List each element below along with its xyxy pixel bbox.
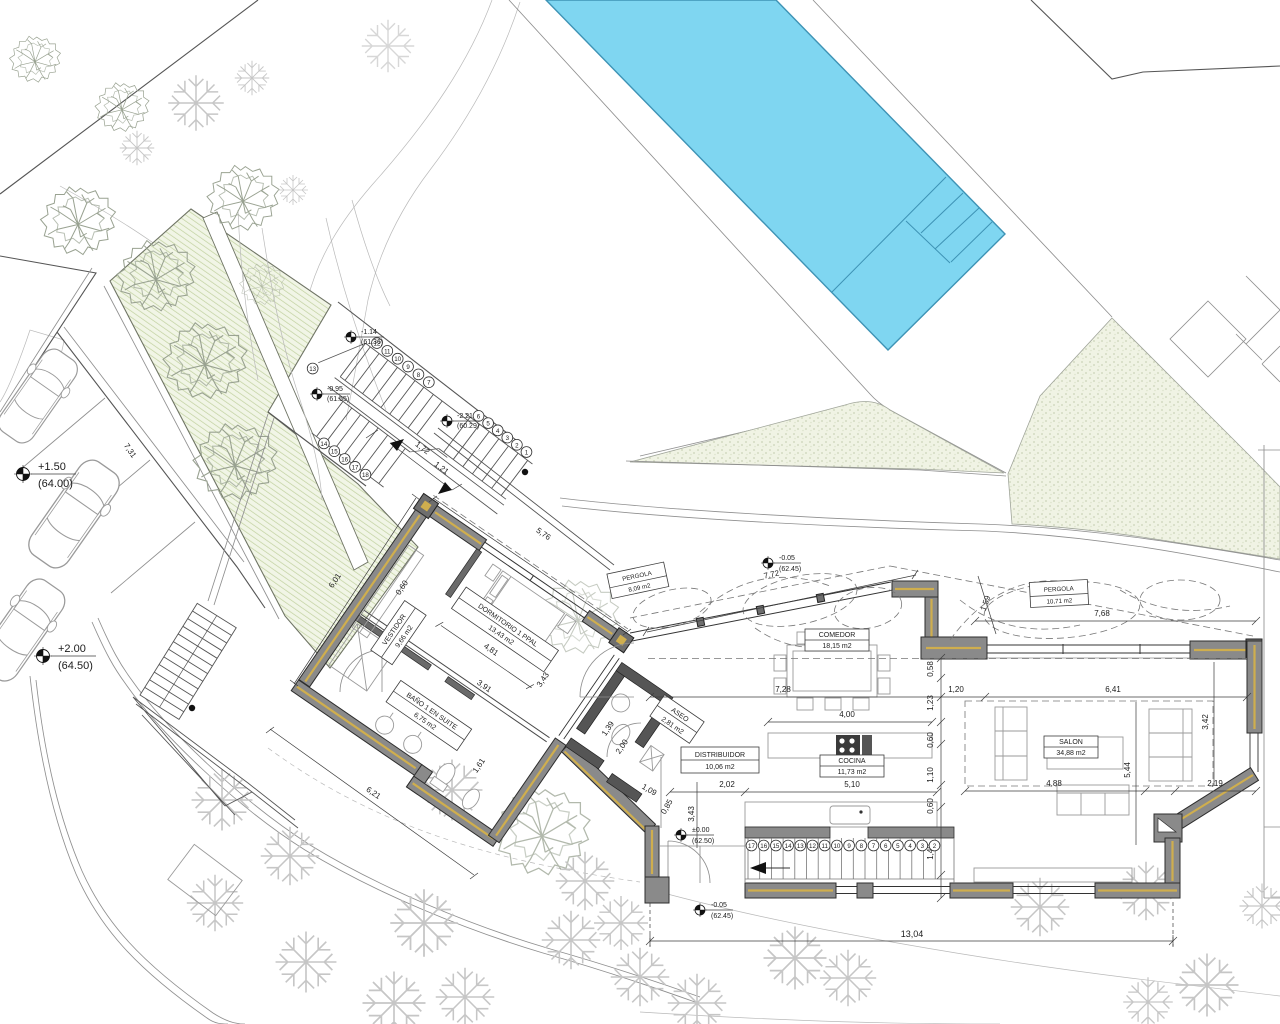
svg-text:0,60: 0,60 xyxy=(926,798,935,814)
svg-text:0,58: 0,58 xyxy=(926,661,935,677)
svg-text:5: 5 xyxy=(486,421,490,428)
svg-text:15: 15 xyxy=(331,449,338,456)
svg-text:(64.50): (64.50) xyxy=(58,660,93,672)
svg-text:0,60: 0,60 xyxy=(926,732,935,748)
svg-text:7: 7 xyxy=(427,380,431,387)
svg-text:6,41: 6,41 xyxy=(1105,685,1121,694)
svg-text:-2.21: -2.21 xyxy=(457,413,473,420)
svg-text:1,20: 1,20 xyxy=(948,685,964,694)
svg-text:16: 16 xyxy=(341,457,348,464)
svg-text:2: 2 xyxy=(933,843,937,850)
svg-text:13,04: 13,04 xyxy=(901,929,924,939)
svg-text:4,00: 4,00 xyxy=(839,710,855,719)
svg-text:11: 11 xyxy=(384,348,391,355)
svg-text:10: 10 xyxy=(833,843,840,850)
svg-text:-0.05: -0.05 xyxy=(779,555,795,562)
svg-text:2,02: 2,02 xyxy=(719,780,735,789)
svg-text:1,10: 1,10 xyxy=(926,767,935,783)
svg-text:3: 3 xyxy=(506,435,510,442)
svg-text:COCINA: COCINA xyxy=(838,758,866,765)
svg-text:12: 12 xyxy=(809,843,816,850)
svg-text:16: 16 xyxy=(760,843,767,850)
svg-text:11,73 m2: 11,73 m2 xyxy=(838,769,867,776)
svg-text:7,28: 7,28 xyxy=(775,685,791,694)
svg-text:14: 14 xyxy=(320,441,327,448)
svg-text:4,88: 4,88 xyxy=(1046,779,1062,788)
svg-text:(62.50): (62.50) xyxy=(692,838,714,845)
svg-text:5,10: 5,10 xyxy=(844,780,860,789)
svg-text:8: 8 xyxy=(860,843,864,850)
svg-text:+1.50: +1.50 xyxy=(38,461,66,473)
svg-text:10: 10 xyxy=(394,356,401,363)
svg-text:10,06 m2: 10,06 m2 xyxy=(705,764,734,771)
svg-text:(61.55): (61.55) xyxy=(327,396,349,403)
svg-text:7: 7 xyxy=(872,843,876,850)
svg-text:4: 4 xyxy=(496,428,500,435)
svg-text:5,44: 5,44 xyxy=(1123,762,1132,778)
svg-text:COMEDOR: COMEDOR xyxy=(819,632,856,639)
svg-text:-0.95: -0.95 xyxy=(327,386,343,393)
svg-text:(61.36): (61.36) xyxy=(361,339,383,346)
svg-text:2,19: 2,19 xyxy=(1207,779,1223,788)
svg-text:3,42: 3,42 xyxy=(1201,714,1210,730)
svg-text:(62.45): (62.45) xyxy=(779,566,801,573)
svg-text:13: 13 xyxy=(309,366,316,373)
svg-text:17: 17 xyxy=(748,843,755,850)
svg-text:13: 13 xyxy=(797,843,804,850)
svg-text:3: 3 xyxy=(921,843,925,850)
svg-text:11: 11 xyxy=(821,843,828,850)
svg-text:7,68: 7,68 xyxy=(1094,609,1110,618)
svg-text:(60.29): (60.29) xyxy=(457,423,479,430)
svg-text:10,71 m2: 10,71 m2 xyxy=(1046,597,1073,605)
svg-text:1: 1 xyxy=(525,450,529,457)
svg-text:4: 4 xyxy=(908,843,912,850)
svg-text:17: 17 xyxy=(352,464,359,471)
svg-text:9: 9 xyxy=(847,843,851,850)
svg-text:18,15 m2: 18,15 m2 xyxy=(822,643,851,650)
svg-text:-1.14: -1.14 xyxy=(361,329,377,336)
svg-text:6: 6 xyxy=(477,413,481,420)
svg-text:6: 6 xyxy=(884,843,888,850)
svg-text:14: 14 xyxy=(785,843,792,850)
svg-text:8: 8 xyxy=(417,372,421,379)
svg-text:DISTRIBUIDOR: DISTRIBUIDOR xyxy=(695,752,745,759)
svg-text:5: 5 xyxy=(896,843,900,850)
svg-text:3,43: 3,43 xyxy=(687,806,696,822)
svg-text:SALON: SALON xyxy=(1059,739,1083,746)
svg-text:(64.00): (64.00) xyxy=(38,478,73,490)
svg-text:(62.45): (62.45) xyxy=(711,913,733,920)
svg-text:2: 2 xyxy=(515,442,519,449)
svg-text:34,88 m2: 34,88 m2 xyxy=(1056,750,1085,757)
svg-text:-0.05: -0.05 xyxy=(711,902,727,909)
svg-text:18: 18 xyxy=(362,472,369,479)
svg-text:9: 9 xyxy=(406,364,410,371)
svg-text:±0.00: ±0.00 xyxy=(692,827,710,834)
svg-text:15: 15 xyxy=(772,843,779,850)
svg-text:+2.00: +2.00 xyxy=(58,643,86,655)
